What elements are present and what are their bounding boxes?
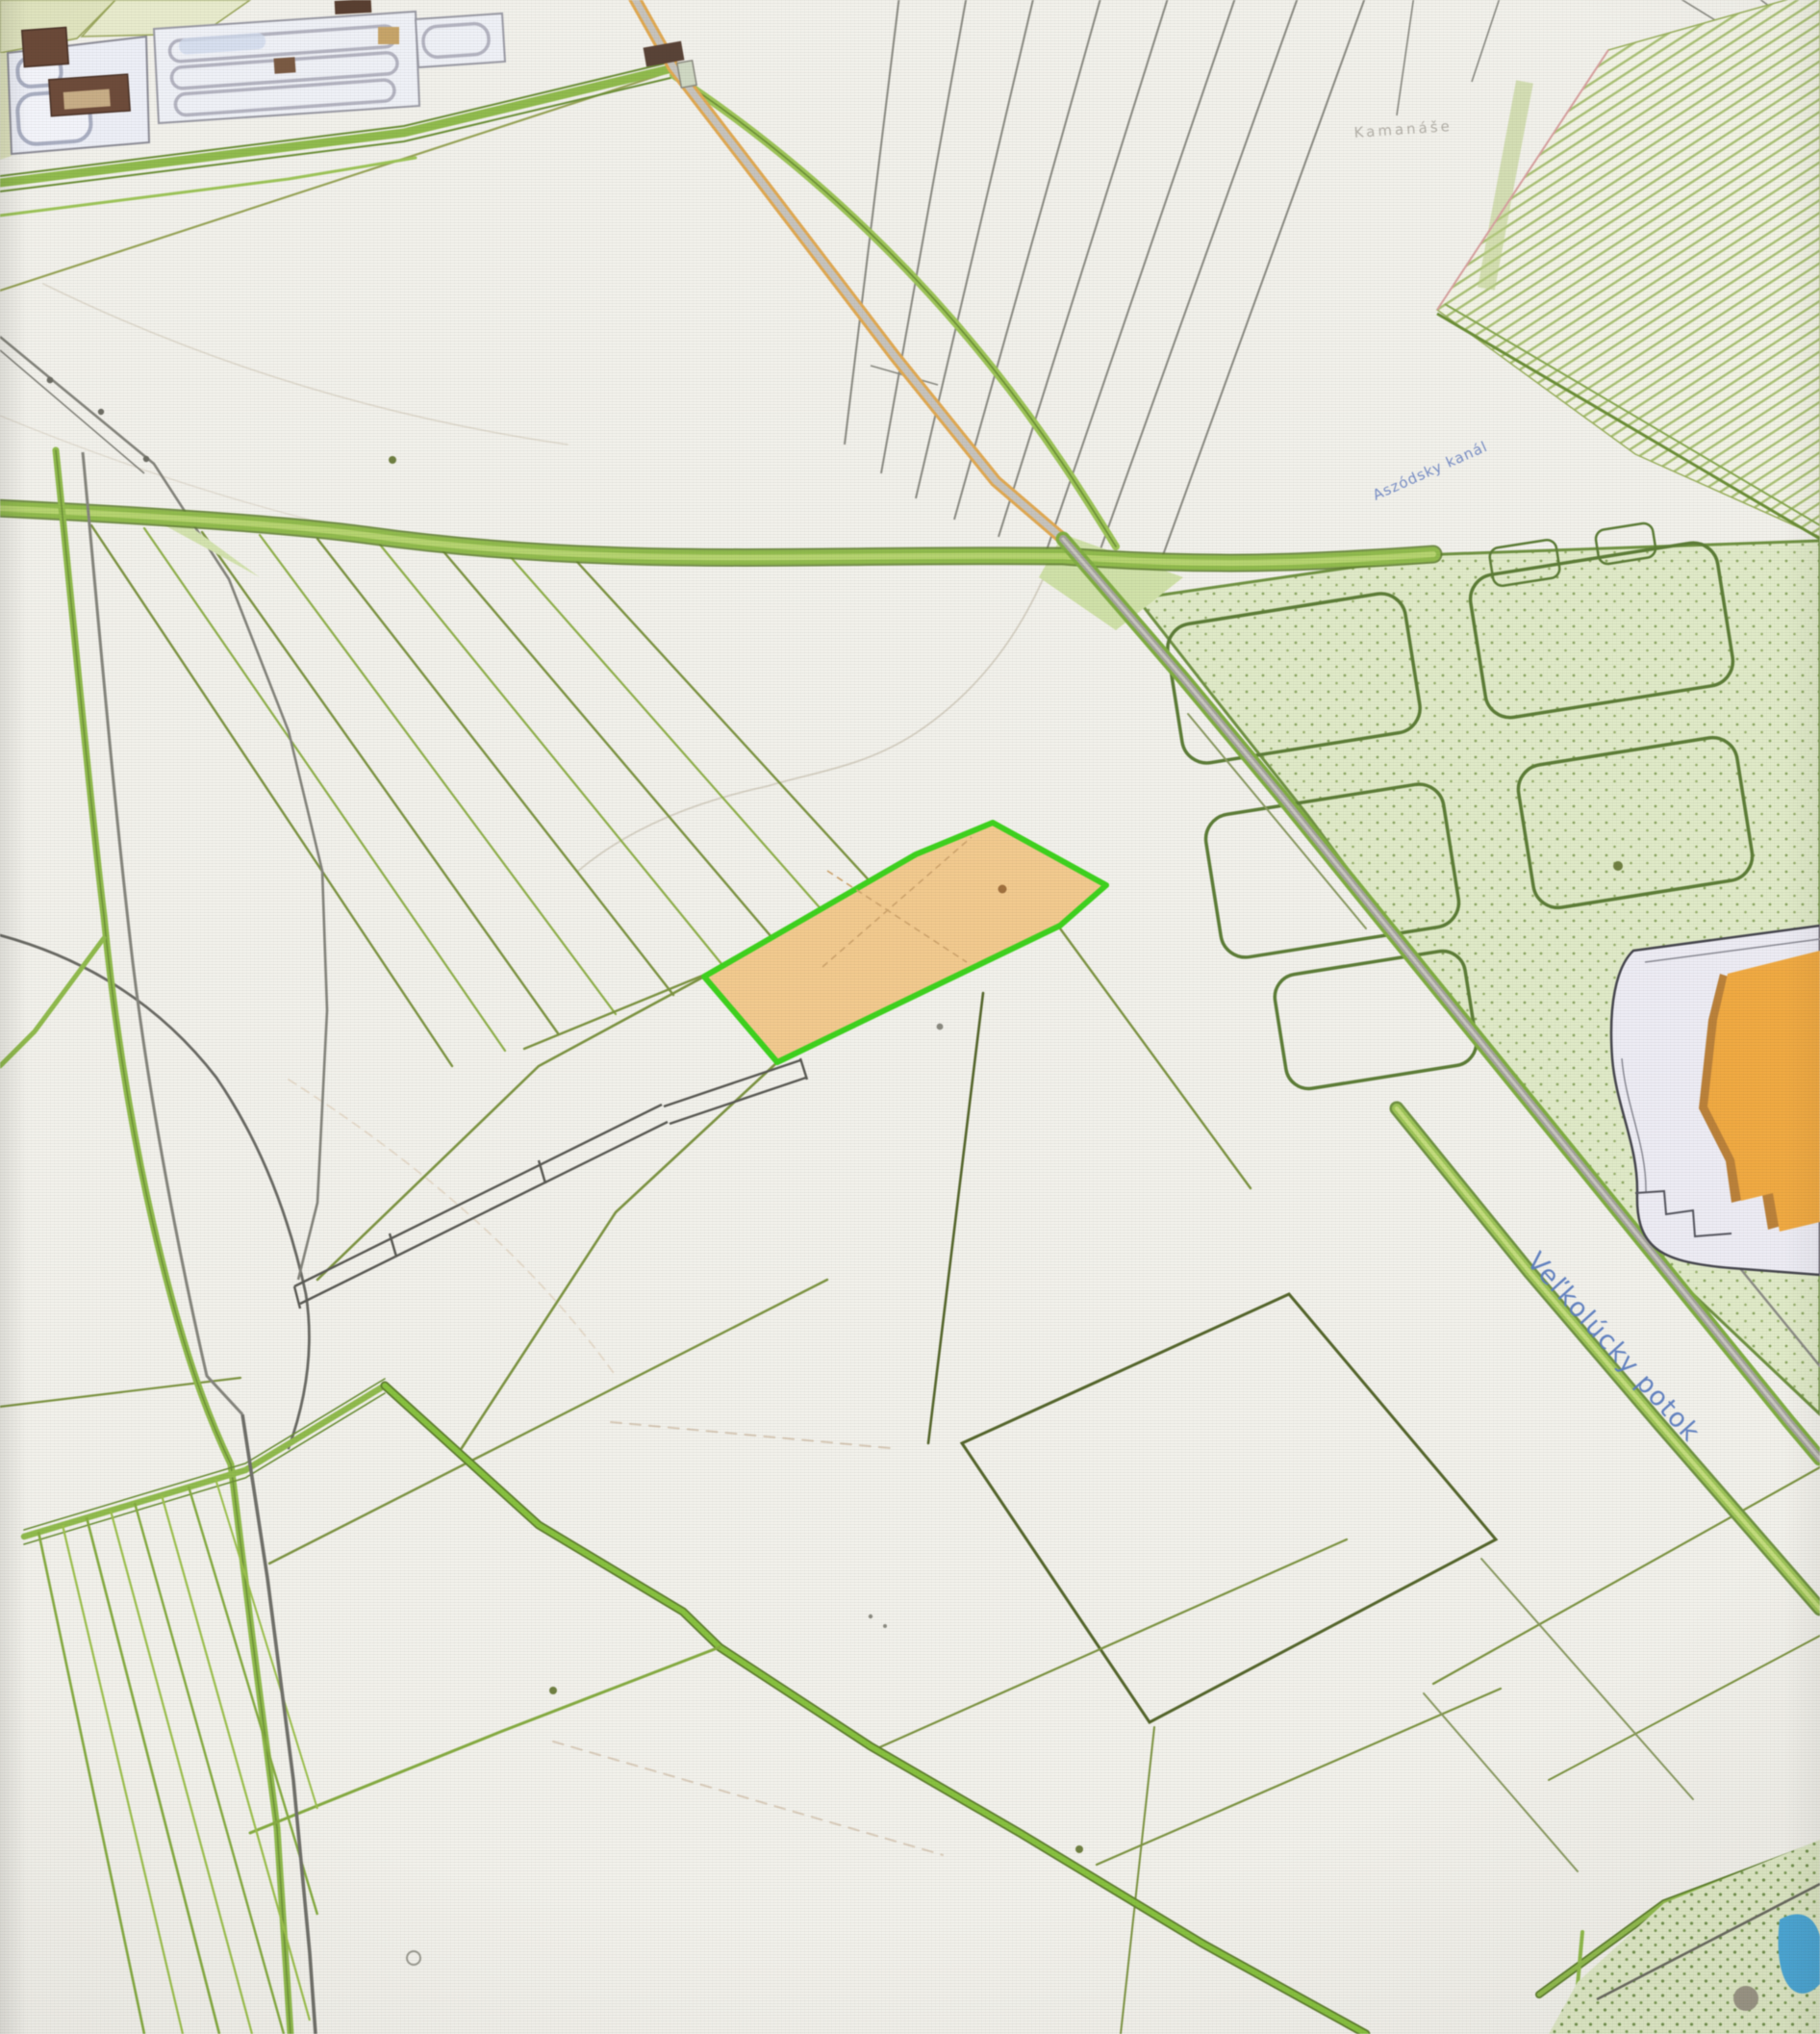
- point-marker: [998, 885, 1007, 894]
- farm-building: [335, 0, 372, 14]
- farm-building: [22, 27, 69, 66]
- industrial-site: [1611, 926, 1820, 1275]
- map-viewport: Kamanáše Aszódsky kanál Veľkolúcky potok: [0, 0, 1820, 2034]
- farm-pad: [416, 13, 505, 67]
- crossing-shed: [677, 61, 696, 88]
- farm-building-roof: [63, 89, 111, 109]
- farm-building: [273, 57, 295, 73]
- farm-building: [378, 27, 399, 44]
- map-canvas[interactable]: Kamanáše Aszódsky kanál Veľkolúcky potok: [0, 0, 1820, 2034]
- farm-pad: [8, 27, 149, 154]
- gray-blob: [1733, 1986, 1758, 2011]
